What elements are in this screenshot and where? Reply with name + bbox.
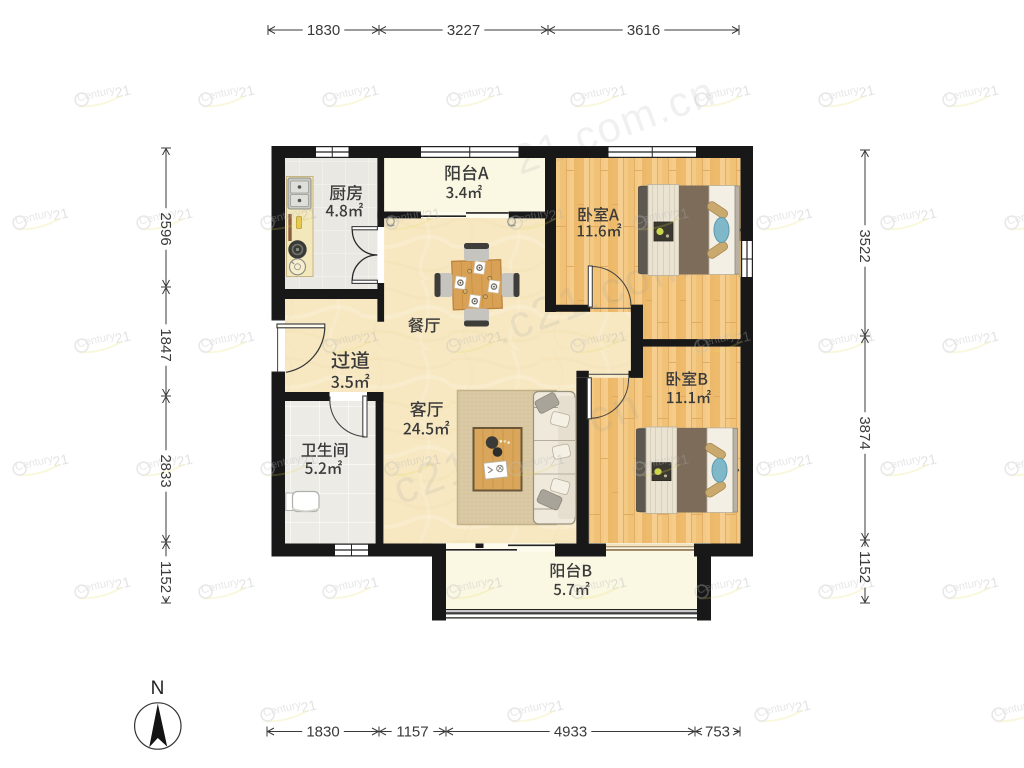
svg-text:3874: 3874: [856, 416, 873, 449]
svg-text:1830: 1830: [306, 724, 339, 741]
svg-text:1830: 1830: [307, 22, 340, 39]
svg-text:1152: 1152: [856, 551, 873, 583]
svg-text:3227: 3227: [447, 22, 480, 39]
svg-text:1152: 1152: [157, 561, 174, 593]
svg-text:753: 753: [705, 724, 730, 741]
svg-text:1157: 1157: [396, 724, 428, 741]
svg-text:4933: 4933: [554, 724, 587, 741]
svg-text:N: N: [151, 678, 165, 699]
svg-text:3522: 3522: [856, 229, 873, 262]
svg-text:3616: 3616: [627, 22, 660, 39]
svg-text:1847: 1847: [157, 328, 174, 361]
svg-text:2833: 2833: [157, 454, 174, 487]
svg-text:2596: 2596: [157, 212, 174, 245]
